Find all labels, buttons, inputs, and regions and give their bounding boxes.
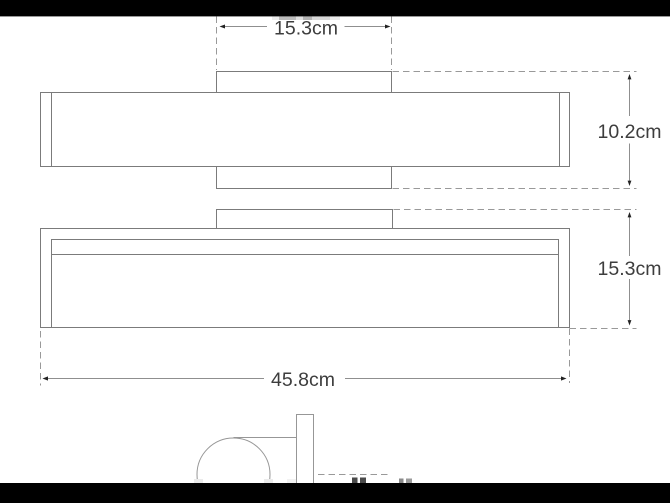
svg-text:10.2cm: 10.2cm bbox=[598, 121, 662, 143]
svg-text:15.3cm: 15.3cm bbox=[274, 17, 338, 39]
svg-text:15.3cm: 15.3cm bbox=[598, 258, 662, 280]
svg-text:45.8cm: 45.8cm bbox=[271, 369, 335, 391]
